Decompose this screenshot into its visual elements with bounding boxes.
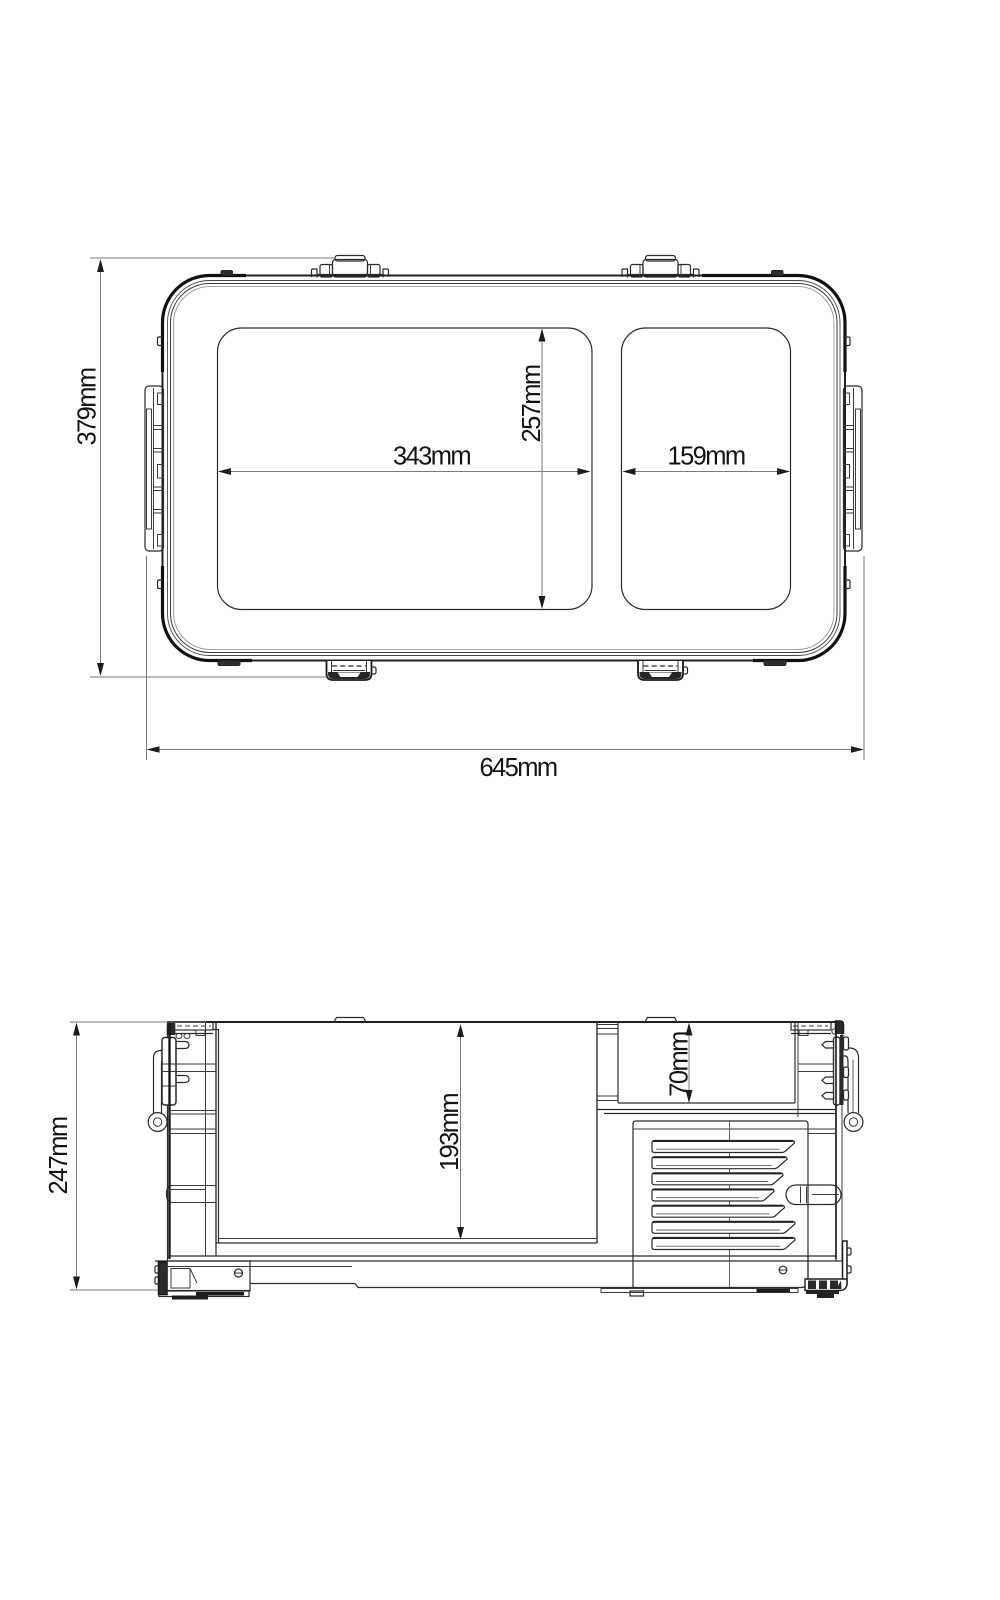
svg-text:379mm: 379mm (74, 368, 102, 445)
svg-text:159mm: 159mm (667, 443, 744, 471)
svg-text:257mm: 257mm (518, 365, 546, 442)
svg-text:343mm: 343mm (393, 443, 470, 471)
svg-text:193mm: 193mm (436, 1094, 464, 1171)
svg-text:70mm: 70mm (666, 1032, 694, 1097)
svg-text:645mm: 645mm (479, 754, 556, 782)
svg-text:247mm: 247mm (45, 1117, 73, 1194)
